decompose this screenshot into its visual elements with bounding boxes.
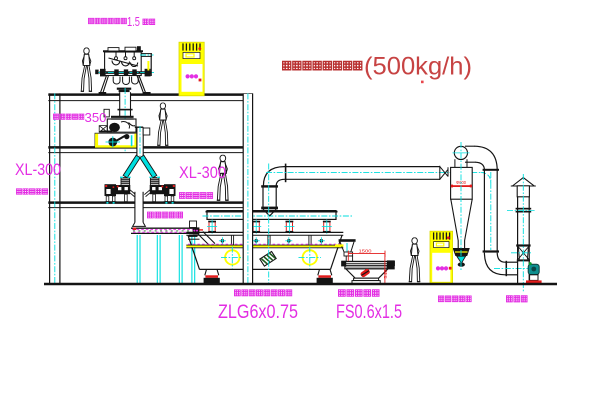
svg-text:XL-300: XL-300: [179, 164, 226, 182]
svg-text:1.5: 1.5: [127, 15, 140, 29]
svg-text:FS0.6x1.5: FS0.6x1.5: [336, 301, 402, 323]
svg-text:ZLG6x0.75: ZLG6x0.75: [218, 301, 298, 323]
svg-text:350: 350: [85, 110, 107, 125]
svg-text:540: 540: [383, 269, 389, 278]
svg-text:XL-300: XL-300: [15, 161, 61, 179]
svg-text:(500kg/h): (500kg/h): [364, 53, 472, 81]
svg-text:1500: 1500: [359, 248, 372, 254]
